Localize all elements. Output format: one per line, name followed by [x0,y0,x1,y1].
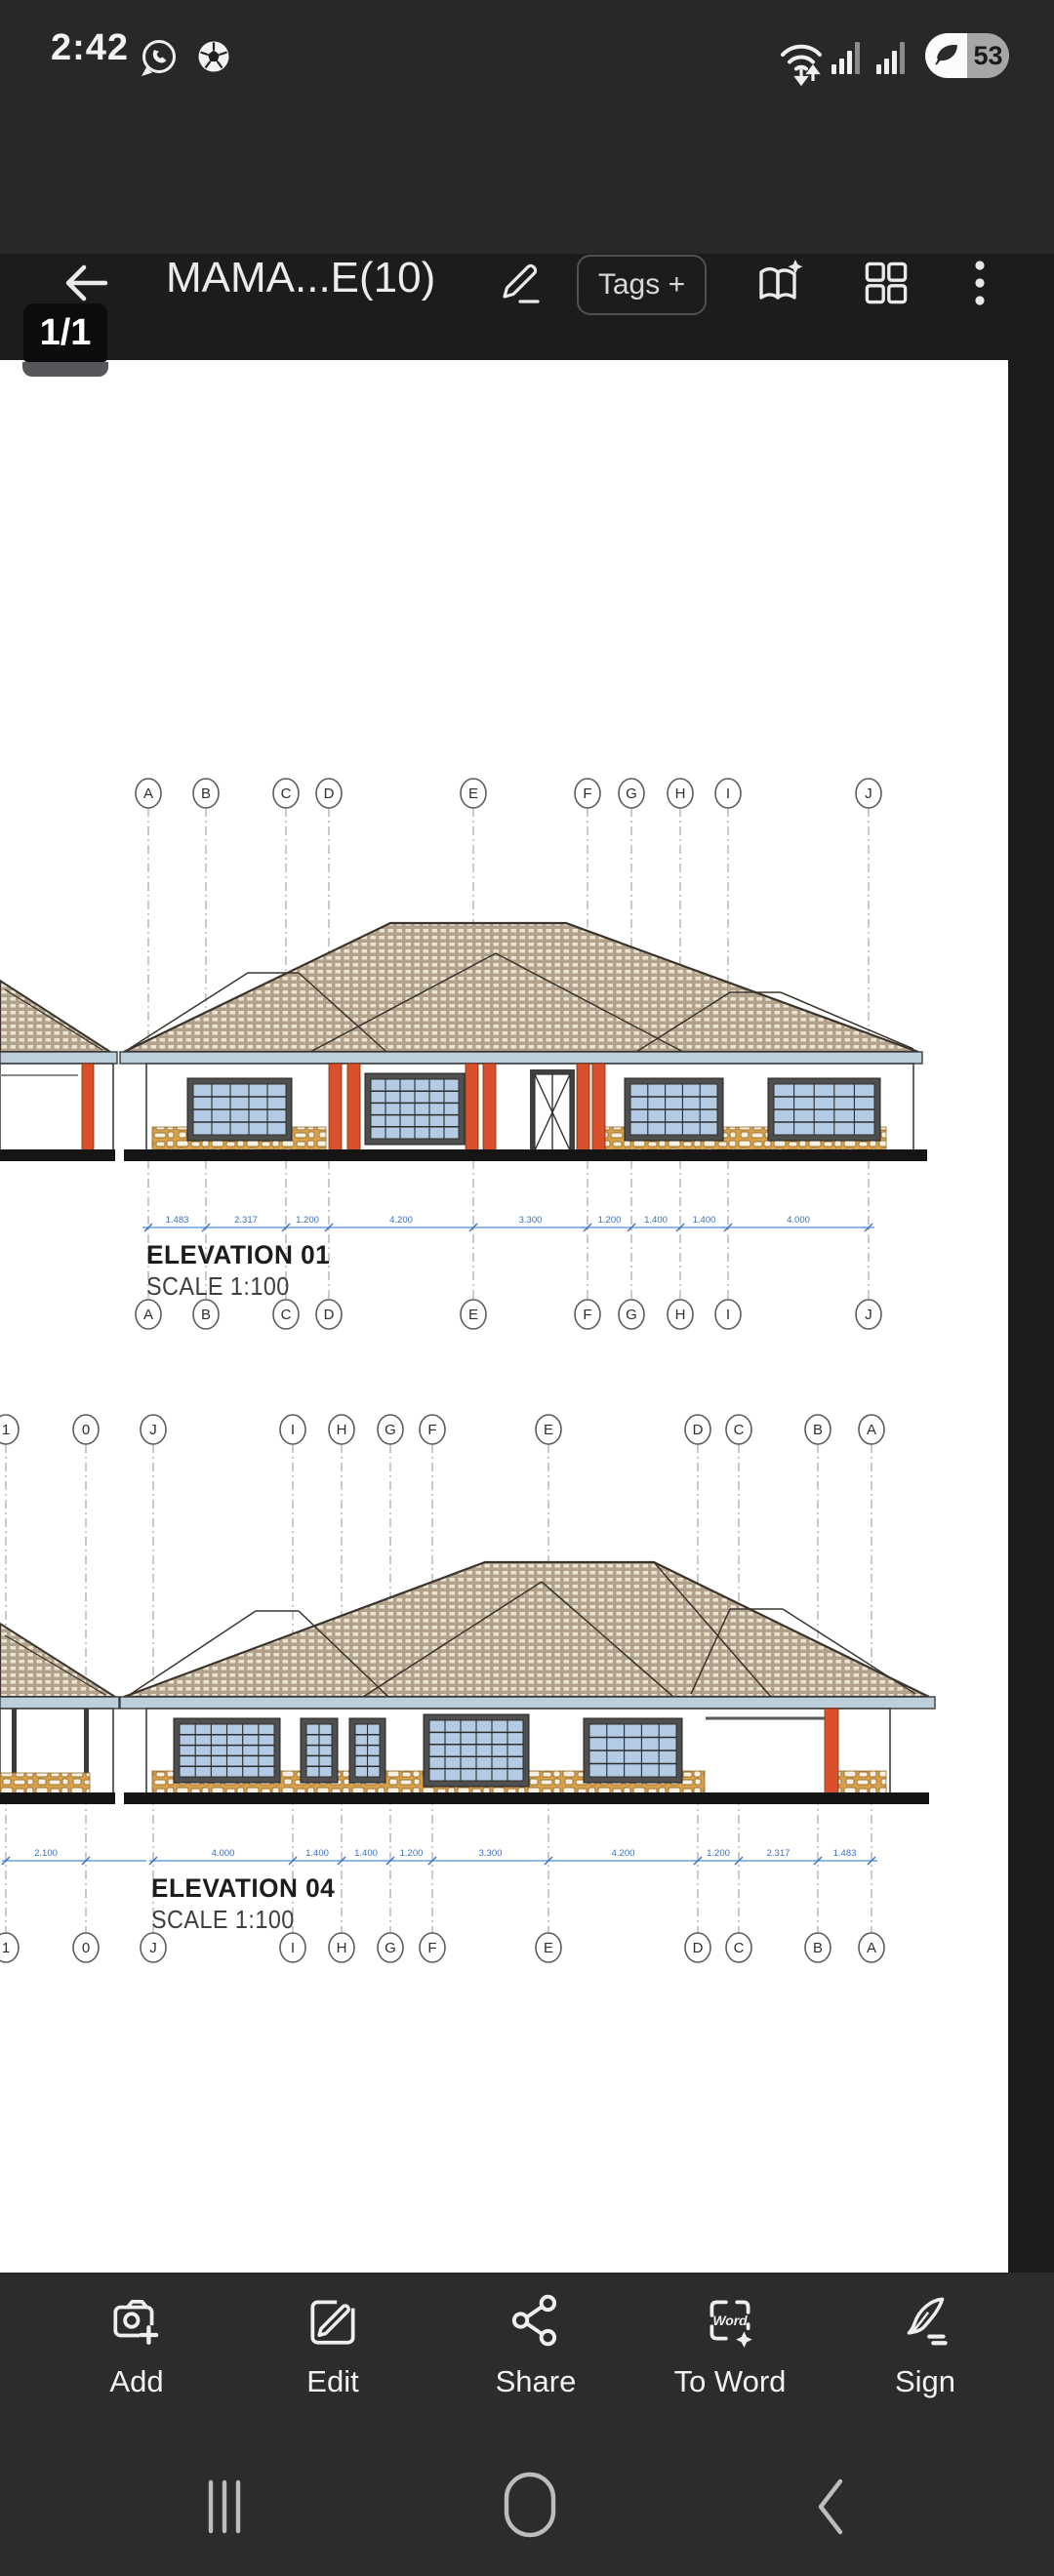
sign-icon [895,2290,955,2351]
back-chevron-icon [811,2475,850,2538]
svg-text:A: A [867,1940,876,1956]
svg-text:E: E [468,1307,478,1323]
svg-text:D: D [324,1307,335,1323]
signal-icon-sim2 [876,37,912,80]
toolbar-item-label: Share [496,2364,577,2399]
svg-text:A: A [143,1307,153,1323]
svg-text:H: H [337,1422,347,1438]
svg-text:F: F [583,785,591,802]
kebab-menu-icon [972,256,988,310]
svg-text:G: G [626,785,637,802]
svg-text:C: C [734,1940,745,1956]
thumbnails-button[interactable] [857,256,915,310]
overflow-menu-button[interactable] [960,256,999,310]
toolbar-to-word-button[interactable]: Word To Word [650,2290,810,2427]
svg-text:B: B [201,1307,211,1323]
svg-text:4.000: 4.000 [212,1848,235,1859]
svg-text:D: D [693,1940,704,1956]
toolbar-edit-button[interactable]: Edit [253,2290,413,2427]
back-nav-button[interactable] [791,2466,870,2548]
svg-text:A: A [867,1422,876,1438]
svg-text:F: F [427,1422,436,1438]
top-chrome: 2:42 [0,0,1054,254]
svg-text:2.100: 2.100 [34,1848,58,1859]
home-button[interactable] [491,2464,569,2546]
toolbar-add-button[interactable]: Add [57,2290,217,2427]
svg-text:1.200: 1.200 [707,1848,730,1859]
svg-text:3.300: 3.300 [519,1215,543,1226]
svg-text:H: H [675,785,686,802]
svg-text:2.317: 2.317 [234,1215,258,1226]
svg-text:0: 0 [82,1940,90,1956]
svg-text:I: I [291,1940,295,1956]
svg-text:1.400: 1.400 [644,1215,668,1226]
svg-text:F: F [427,1940,436,1956]
phone-screen: 2:42 [0,0,1054,2576]
rename-button[interactable] [491,258,546,308]
svg-text:C: C [281,1307,292,1323]
svg-text:1.483: 1.483 [833,1848,857,1859]
svg-text:I: I [726,1307,730,1323]
battery-percent: 53 [973,41,1002,71]
page-indicator-badge: 1/1 [23,303,107,362]
recents-icon [207,2477,258,2536]
word-badge-text: Word [712,2313,748,2328]
power-saving-leaf-icon [925,33,967,78]
svg-text:4.200: 4.200 [612,1848,635,1859]
svg-text:I: I [291,1422,295,1438]
page-indicator-label: 1/1 [40,312,92,354]
to-word-icon: Word [700,2290,760,2351]
page-indicator-strip [22,362,108,377]
signal-icon-sim1 [831,37,867,80]
svg-text:G: G [385,1940,396,1956]
svg-text:B: B [813,1940,823,1956]
svg-text:1.200: 1.200 [598,1215,622,1226]
svg-text:J: J [149,1422,157,1438]
svg-text:B: B [813,1422,823,1438]
document-page[interactable]: ABCDEFGHIJABCDEFGHIJ1.4832.3171.2004.200… [0,360,1008,2273]
clock: 2:42 [51,27,129,69]
svg-text:4.200: 4.200 [389,1215,413,1226]
toolbar-sign-button[interactable]: Sign [845,2290,1005,2427]
toolbar-item-label: Edit [306,2364,358,2399]
svg-text:4.000: 4.000 [787,1215,810,1226]
recents-button[interactable] [193,2466,271,2548]
elevation-drawings: ABCDEFGHIJABCDEFGHIJ1.4832.3171.2004.200… [0,360,1008,2273]
toolbar-item-label: Sign [895,2364,955,2399]
tags-button[interactable]: Tags + [577,255,707,315]
svg-text:1.400: 1.400 [305,1848,329,1859]
svg-text:J: J [865,1307,872,1323]
svg-text:E: E [468,785,478,802]
svg-text:1.400: 1.400 [693,1215,716,1226]
svg-text:1: 1 [2,1422,10,1438]
document-title: MAMA...E(10) [166,254,488,302]
svg-text:D: D [693,1422,704,1438]
back-button[interactable] [55,256,113,310]
elevation-04-drawing: 10JIHGFEDCBA10JIHGFEDCBA2.1004.0001.4001… [0,1415,935,1962]
wifi-icon [774,31,829,86]
elevation-01-drawing: ABCDEFGHIJABCDEFGHIJ1.4832.3171.2004.200… [0,779,927,1329]
svg-text:C: C [281,785,292,802]
svg-text:3.300: 3.300 [479,1848,503,1859]
svg-text:J: J [865,785,872,802]
battery-indicator: 53 [925,33,1009,78]
svg-text:0: 0 [82,1422,90,1438]
navigation-bar [0,2436,1054,2576]
svg-text:B: B [201,785,211,802]
svg-text:1.200: 1.200 [296,1215,319,1226]
svg-text:A: A [143,785,153,802]
edit-pen-icon [493,258,544,308]
edit-icon [303,2290,363,2351]
tags-button-label: Tags + [598,268,685,302]
svg-text:F: F [583,1307,591,1323]
svg-text:1.483: 1.483 [166,1215,189,1226]
toolbar-share-button[interactable]: Share [456,2290,616,2427]
sports-notification-icon [191,35,236,80]
svg-text:G: G [385,1422,396,1438]
whatsapp-notification-icon [137,35,182,80]
svg-text:1.400: 1.400 [354,1848,378,1859]
svg-text:1: 1 [2,1940,10,1956]
svg-text:1.200: 1.200 [400,1848,424,1859]
app-toolbar: MAMA...E(10) Tags + [0,109,1054,254]
toolbar-item-label: To Word [674,2364,787,2399]
svg-text:D: D [324,785,335,802]
status-bar: 2:42 [0,0,1054,109]
book-sparkle-icon [751,256,806,310]
grid-icon [859,256,913,310]
toolbar-item-label: Add [109,2364,163,2399]
back-arrow-icon [57,256,111,310]
share-icon [506,2290,566,2351]
svg-text:C: C [734,1422,745,1438]
svg-text:E: E [544,1940,553,1956]
svg-text:H: H [337,1940,347,1956]
reader-mode-button[interactable] [750,256,808,310]
svg-text:E: E [544,1422,553,1438]
svg-text:I: I [726,785,730,802]
svg-text:J: J [149,1940,157,1956]
add-icon [106,2290,167,2351]
svg-text:2.317: 2.317 [767,1848,790,1859]
bottom-bar: Add Edit Share Word To Word Sign [0,2273,1054,2576]
svg-text:G: G [626,1307,637,1323]
svg-text:H: H [675,1307,686,1323]
home-icon [503,2472,557,2538]
